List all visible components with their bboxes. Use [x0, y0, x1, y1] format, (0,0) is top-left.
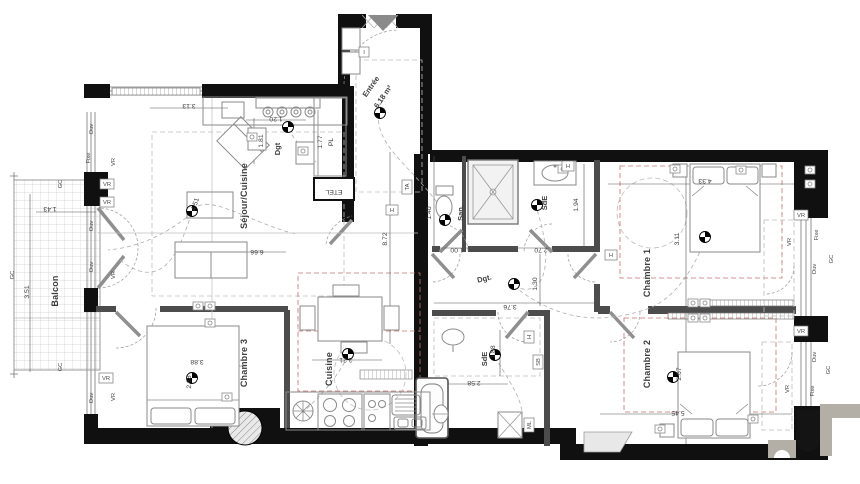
tag-box: H [386, 205, 398, 215]
switch-icon [805, 166, 815, 174]
tag-label: VR [785, 385, 791, 393]
dim-label: 2.68 [186, 375, 193, 388]
tag-label: VR [102, 376, 110, 382]
room-label-chambre2: Chambre 2 [642, 340, 652, 388]
tag-label: Fixe [86, 153, 92, 164]
tag-box: VR [100, 197, 114, 207]
tag-label: GC [58, 363, 64, 372]
dim-label: 1.88 [490, 345, 497, 358]
dim-label: 1.00 [450, 246, 463, 253]
dim-label: 1.40 [426, 206, 433, 219]
shower [468, 160, 518, 224]
dim-label: 2.21 [339, 356, 352, 363]
dim-label: 1.81 [258, 134, 265, 147]
switch-icon [298, 147, 308, 155]
tag-label: TA [405, 183, 411, 190]
washing-machine [498, 412, 522, 438]
room-label-dgt-1: Dgt [273, 142, 282, 155]
tag-label: SB [536, 358, 542, 366]
tag-label: GC [10, 271, 16, 280]
switch-icon [193, 302, 203, 310]
dim-label: 1.43 [43, 205, 56, 212]
tag-label: Ouv [89, 124, 95, 135]
tag-label: H [527, 335, 533, 339]
switch-icon [805, 180, 815, 188]
switch-icon [670, 165, 680, 173]
toilet [436, 186, 453, 218]
survey-point-icon [375, 108, 386, 119]
sofa [175, 242, 247, 278]
tag-label: VR [111, 393, 117, 401]
tag-label: Ouv [812, 264, 818, 275]
floor-plan: Séjour/Cuisine Entrée 6.18 m² Balcon Cha… [0, 0, 860, 484]
room-label-balcon: Balcon [50, 275, 60, 306]
tag-label: GC [826, 366, 832, 375]
room-label-san: San. [456, 205, 465, 221]
tag-label: H [609, 253, 613, 259]
dim-label: 4.33 [698, 177, 711, 184]
room-label-sde-2: SdE [480, 352, 489, 367]
dim-label: 2.58 [467, 379, 480, 386]
dim-label: 1.20 [269, 115, 282, 122]
tag-label: H [566, 164, 570, 170]
dim-label-pl: PL [328, 138, 335, 147]
dim-label: 1.94 [573, 198, 580, 211]
tag-label: VR [797, 213, 805, 219]
switch-icon [205, 319, 215, 327]
tag-label: H [390, 208, 394, 214]
floor-plan-page: Séjour/Cuisine Entrée 6.18 m² Balcon Cha… [0, 0, 860, 484]
dim-label: 8.72 [382, 232, 389, 245]
survey-point-icon [700, 232, 711, 243]
tag-label: VR [103, 182, 111, 188]
tag-label: VR [111, 158, 117, 166]
tag-box: VR [100, 179, 114, 189]
tag-label: VR [787, 238, 793, 246]
tag-box: SB [533, 355, 543, 369]
tag-box: VR [794, 326, 808, 336]
dim-label: 2.67 [676, 367, 683, 380]
switch-icon [748, 415, 758, 423]
dim-label: 3.76 [503, 303, 516, 310]
dim-label: 3.11 [674, 232, 681, 245]
survey-point-icon [440, 215, 451, 226]
dim-label: 2.70 [534, 246, 547, 253]
tag-label: ML [527, 420, 533, 429]
tag-label: Ouv [812, 352, 818, 363]
tag-box: H [605, 250, 617, 260]
tag-label: Ouv [89, 221, 95, 232]
room-label-cuisine: Cuisine [324, 352, 334, 386]
switch-icon [688, 299, 698, 307]
switch-icon [247, 133, 257, 141]
switch-icon [736, 166, 746, 174]
dim-label: 3.88 [190, 358, 203, 365]
dim-label: 6.66 [250, 248, 263, 255]
switch-icon [222, 393, 232, 401]
survey-point-icon [283, 122, 294, 133]
dim-label: 5.45 [671, 409, 684, 416]
dim-label-etel: ETEL [325, 188, 342, 195]
tag-label: Ouv [89, 262, 95, 273]
dim-label: 3.51 [24, 285, 31, 298]
room-label-sde-1: SdE [540, 196, 549, 211]
dim-label: 3.13 [182, 102, 195, 109]
tag-label: VR [797, 329, 805, 335]
switch-icon [700, 299, 710, 307]
switch-icon [655, 425, 665, 433]
dim-label: 1.77 [317, 135, 324, 148]
tag-label: Fixe [814, 230, 820, 241]
tag-box: VR [99, 373, 113, 383]
switch-icon [205, 302, 215, 310]
tag-box: VR [794, 210, 808, 220]
tag-label: Ouv [89, 393, 95, 404]
tag-label: VR [111, 271, 117, 279]
dim-label: 1.30 [532, 277, 539, 290]
room-label-chambre3: Chambre 3 [239, 339, 249, 387]
switch-icon [688, 314, 698, 322]
tag-label: VR [103, 200, 111, 206]
tag-label: Fixe [810, 386, 816, 397]
tag-box: ML [524, 418, 534, 432]
survey-point-icon [509, 279, 520, 290]
tag-box: TA [402, 180, 412, 194]
tag-box: H [524, 331, 534, 343]
room-label-sejour-cuisine: Séjour/Cuisine [239, 163, 249, 229]
room-label-chambre1: Chambre 1 [642, 249, 652, 297]
tag-box: I [359, 47, 369, 57]
tag-box: H [562, 161, 574, 171]
tag-label: GC [58, 180, 64, 189]
tag-label: GC [829, 255, 835, 264]
switch-icon [700, 314, 710, 322]
